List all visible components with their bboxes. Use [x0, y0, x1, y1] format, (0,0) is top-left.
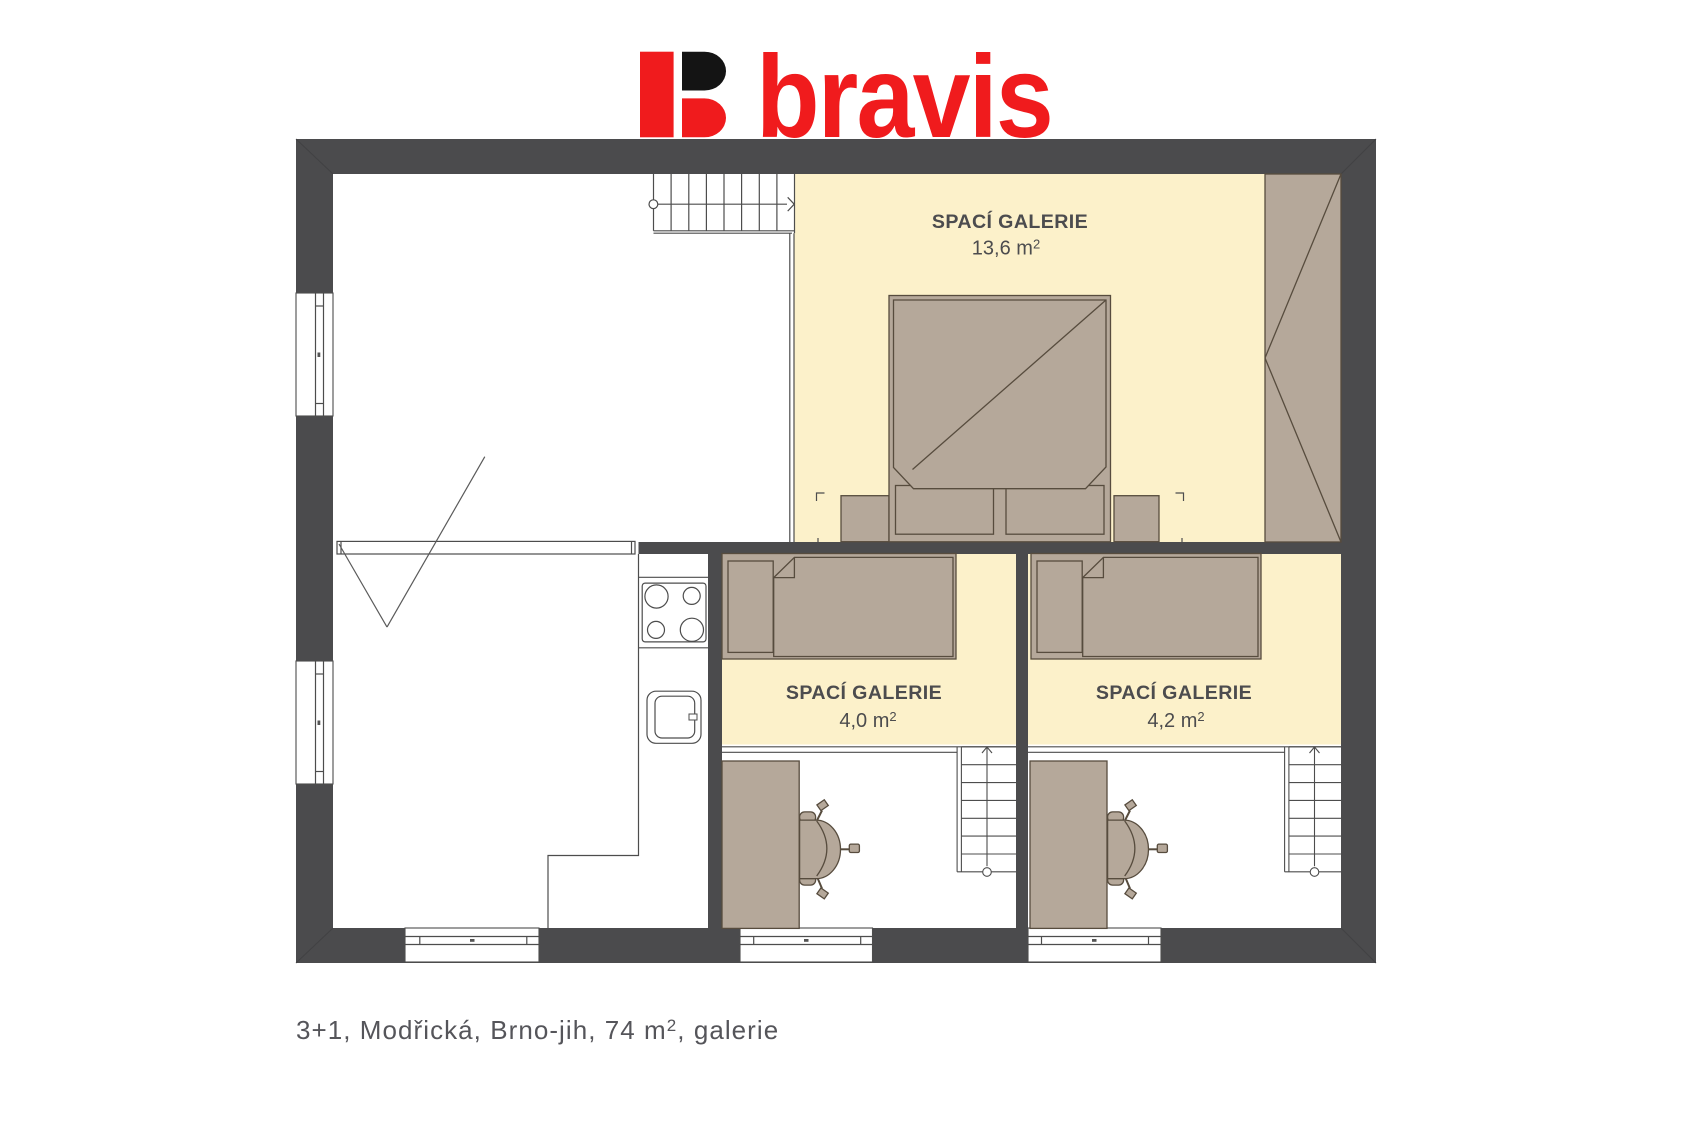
svg-text:SPACÍ GALERIE: SPACÍ GALERIE: [1096, 681, 1252, 704]
svg-text:13,6 m2: 13,6 m2: [972, 237, 1040, 260]
svg-text:SPACÍ GALERIE: SPACÍ GALERIE: [786, 681, 942, 704]
svg-text:4,0 m2: 4,0 m2: [839, 709, 896, 732]
svg-text:4,2 m2: 4,2 m2: [1147, 709, 1204, 732]
svg-text:3+1, Modřická, Brno-jih, 74 m2: 3+1, Modřická, Brno-jih, 74 m2, galerie: [296, 1015, 779, 1045]
svg-text:SPACÍ GALERIE: SPACÍ GALERIE: [932, 210, 1088, 233]
